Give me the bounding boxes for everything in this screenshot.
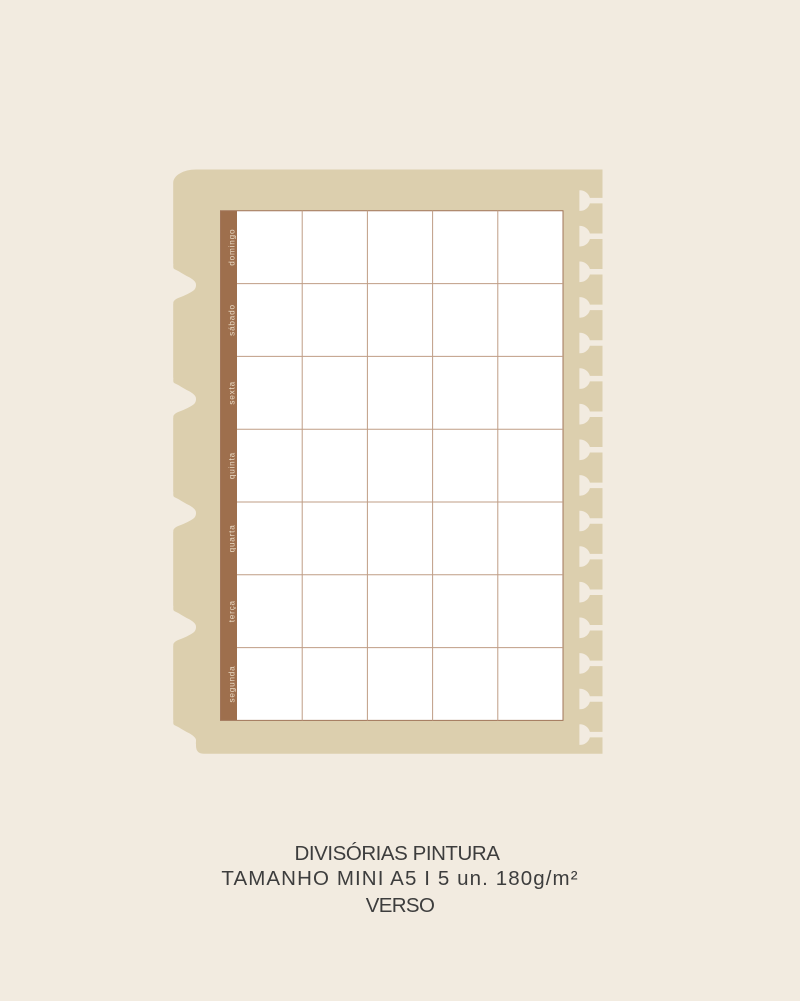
svg-text:quarta: quarta <box>227 524 236 552</box>
svg-text:quinta: quinta <box>227 452 236 479</box>
svg-text:sexta: sexta <box>227 381 236 405</box>
svg-text:terça: terça <box>227 600 236 622</box>
svg-text:segunda: segunda <box>227 665 236 702</box>
svg-text:sábado: sábado <box>227 304 236 336</box>
svg-text:domingo: domingo <box>227 229 236 266</box>
